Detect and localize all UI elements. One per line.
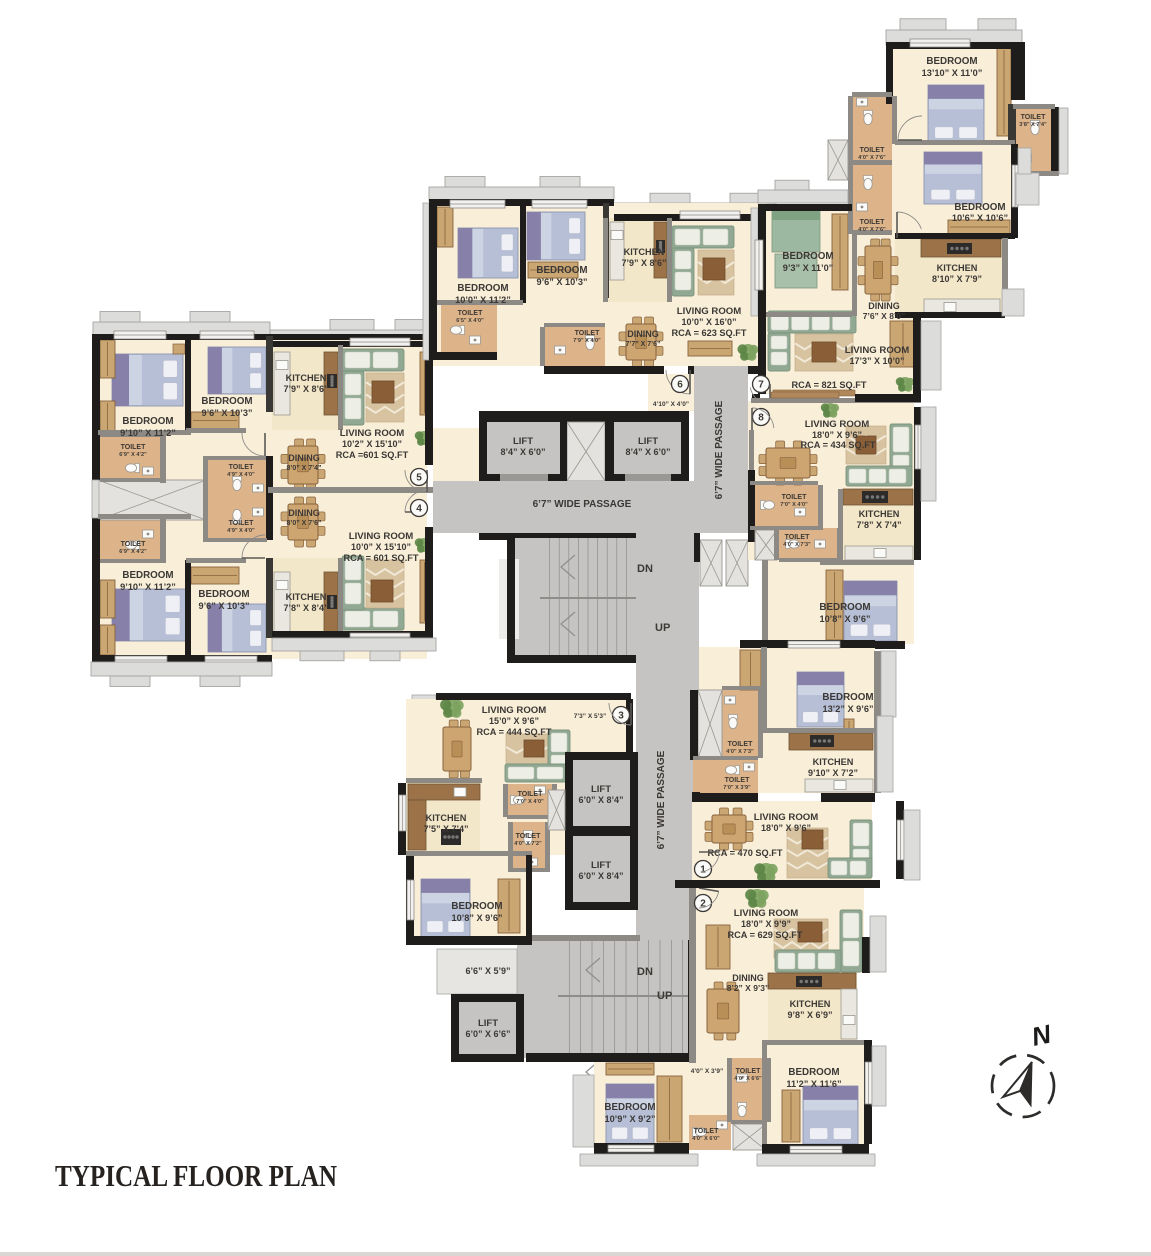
svg-text:BEDROOM: BEDROOM: [122, 416, 173, 427]
svg-text:4’10” X 4’0”: 4’10” X 4’0”: [653, 401, 689, 408]
svg-text:4’0” X 7’6”: 4’0” X 7’6”: [858, 227, 886, 233]
svg-text:TOILET: TOILET: [694, 1128, 719, 1135]
svg-text:LIVING ROOM: LIVING ROOM: [845, 345, 910, 356]
svg-text:10’0” X 15’10”: 10’0” X 15’10”: [351, 542, 411, 552]
svg-text:BEDROOM: BEDROOM: [788, 1067, 839, 1078]
svg-text:DINING: DINING: [868, 301, 900, 311]
svg-text:LIFT: LIFT: [478, 1018, 498, 1029]
svg-text:7’9” X 8’6”: 7’9” X 8’6”: [283, 384, 328, 394]
svg-text:4’0” X 6’0”: 4’0” X 6’0”: [692, 1136, 720, 1142]
svg-text:17’3” X 10’0”: 17’3” X 10’0”: [849, 356, 904, 366]
svg-text:KITCHEN: KITCHEN: [286, 373, 327, 383]
svg-text:LIVING ROOM: LIVING ROOM: [340, 428, 405, 439]
svg-text:18’0” X 9’9”: 18’0” X 9’9”: [741, 919, 791, 929]
svg-text:BEDROOM: BEDROOM: [451, 901, 502, 912]
svg-text:10’8” X 9’6”: 10’8” X 9’6”: [819, 614, 870, 624]
svg-text:TOILET: TOILET: [458, 310, 483, 317]
svg-text:BEDROOM: BEDROOM: [819, 602, 870, 613]
svg-text:BEDROOM: BEDROOM: [122, 570, 173, 581]
svg-text:7’6” X 8’0”: 7’6” X 8’0”: [863, 311, 906, 321]
svg-text:TOILET: TOILET: [229, 520, 254, 527]
svg-text:6’0” X 8’4”: 6’0” X 8’4”: [578, 795, 623, 805]
svg-text:LIFT: LIFT: [513, 436, 533, 447]
svg-text:9’10” X 7’2”: 9’10” X 7’2”: [808, 768, 858, 778]
svg-text:DINING: DINING: [288, 453, 320, 463]
svg-text:KITCHEN: KITCHEN: [859, 509, 900, 519]
svg-text:BEDROOM: BEDROOM: [822, 692, 873, 703]
svg-text:7’9” X 8’6”: 7’9” X 8’6”: [621, 258, 666, 268]
svg-text:TOILET: TOILET: [736, 1068, 761, 1075]
svg-text:BEDROOM: BEDROOM: [201, 396, 252, 407]
svg-text:7: 7: [758, 380, 764, 391]
svg-text:LIVING ROOM: LIVING ROOM: [677, 306, 742, 317]
svg-text:DN: DN: [637, 563, 653, 575]
svg-text:BEDROOM: BEDROOM: [782, 251, 833, 262]
svg-text:18’0” X 9’6”: 18’0” X 9’6”: [812, 430, 862, 440]
svg-text:RCA = 623 SQ.FT: RCA = 623 SQ.FT: [672, 328, 747, 338]
svg-text:DINING: DINING: [288, 508, 320, 518]
svg-text:TOILET: TOILET: [516, 833, 541, 840]
svg-text:8’4” X 6’0”: 8’4” X 6’0”: [500, 447, 545, 457]
svg-text:BEDROOM: BEDROOM: [954, 202, 1005, 213]
svg-text:6’0” X 6’6”: 6’0” X 6’6”: [465, 1029, 510, 1039]
svg-text:8’4” X 6’0”: 8’4” X 6’0”: [625, 447, 670, 457]
svg-text:7’9” X 4’0”: 7’9” X 4’0”: [573, 338, 601, 344]
svg-text:8’0” X 7’4”: 8’0” X 7’4”: [286, 465, 321, 472]
svg-text:15’0” X 9’6”: 15’0” X 9’6”: [489, 716, 539, 726]
svg-text:7’8” X 7’4”: 7’8” X 7’4”: [856, 520, 901, 530]
svg-text:RCA = 601 SQ.FT: RCA = 601 SQ.FT: [344, 553, 419, 563]
svg-text:7’8” X 8’4”: 7’8” X 8’4”: [283, 603, 328, 613]
svg-text:6’7” WIDE PASSAGE: 6’7” WIDE PASSAGE: [714, 400, 725, 499]
svg-text:4’0” X 3’9”: 4’0” X 3’9”: [691, 1068, 724, 1075]
svg-text:TOILET: TOILET: [575, 330, 600, 337]
svg-text:18’0” X 9’6”: 18’0” X 9’6”: [761, 823, 811, 833]
svg-text:RCA = 434 SQ.FT: RCA = 434 SQ.FT: [801, 440, 876, 450]
svg-text:TOILET: TOILET: [518, 791, 543, 798]
svg-text:8’10” X 7’9”: 8’10” X 7’9”: [932, 274, 982, 284]
svg-text:13’10” X 11’0”: 13’10” X 11’0”: [922, 68, 983, 78]
svg-text:RCA =601 SQ.FT: RCA =601 SQ.FT: [336, 450, 409, 460]
svg-text:9’3” X 11’0”: 9’3” X 11’0”: [783, 263, 834, 273]
svg-text:TOILET: TOILET: [229, 464, 254, 471]
svg-text:9’6” X 10’3”: 9’6” X 10’3”: [201, 408, 252, 418]
svg-text:10’9” X 9’2”: 10’9” X 9’2”: [604, 1114, 655, 1124]
svg-text:11’2” X 11’6”: 11’2” X 11’6”: [786, 1079, 841, 1089]
svg-text:10’0” X 16’0”: 10’0” X 16’0”: [681, 317, 736, 327]
svg-text:KITCHEN: KITCHEN: [790, 999, 831, 1009]
svg-text:7’0” X 4’0”: 7’0” X 4’0”: [780, 502, 808, 508]
svg-text:KITCHEN: KITCHEN: [286, 592, 327, 602]
svg-text:LIVING ROOM: LIVING ROOM: [349, 531, 414, 542]
svg-text:7’0” X 4’0”: 7’0” X 4’0”: [516, 799, 544, 805]
svg-text:DINING: DINING: [732, 973, 764, 983]
svg-text:13’2” X 9’6”: 13’2” X 9’6”: [822, 704, 873, 714]
svg-text:9’10” X 11’2”: 9’10” X 11’2”: [120, 428, 176, 438]
svg-text:BEDROOM: BEDROOM: [457, 283, 508, 294]
svg-text:4’0” X 7’2”: 4’0” X 7’2”: [514, 841, 542, 847]
svg-text:LIFT: LIFT: [591, 784, 611, 795]
svg-text:10’6” X 10’6”: 10’6” X 10’6”: [952, 213, 1008, 223]
svg-text:6’9” X 4’2”: 6’9” X 4’2”: [119, 549, 147, 555]
svg-text:4’9” X 4’0”: 4’9” X 4’0”: [227, 528, 255, 534]
svg-text:3’8” X 7’4”: 3’8” X 7’4”: [1019, 122, 1047, 128]
svg-text:4’0” X 7’6”: 4’0” X 7’6”: [858, 155, 886, 161]
svg-text:TOILET: TOILET: [860, 219, 885, 226]
svg-text:9’10” X 11’2”: 9’10” X 11’2”: [120, 582, 176, 592]
svg-text:TOILET: TOILET: [782, 494, 807, 501]
svg-text:RCA = 821 SQ.FT: RCA = 821 SQ.FT: [792, 380, 867, 390]
svg-text:BEDROOM: BEDROOM: [536, 265, 587, 276]
svg-text:KITCHEN: KITCHEN: [937, 263, 978, 273]
svg-text:RCA = 629 SQ.FT: RCA = 629 SQ.FT: [728, 930, 803, 940]
svg-text:4’9” X 4’0”: 4’9” X 4’0”: [227, 472, 255, 478]
svg-text:10’0” X 11’2”: 10’0” X 11’2”: [455, 295, 511, 305]
svg-text:LIVING ROOM: LIVING ROOM: [805, 419, 870, 430]
svg-text:BEDROOM: BEDROOM: [604, 1102, 655, 1113]
svg-text:1: 1: [700, 865, 706, 876]
svg-text:6: 6: [677, 380, 683, 391]
svg-text:6’6” X 5’9”: 6’6” X 5’9”: [465, 966, 510, 976]
svg-text:KITCHEN: KITCHEN: [813, 757, 854, 767]
svg-text:TOILET: TOILET: [121, 541, 146, 548]
svg-text:7’5” X 7’4”: 7’5” X 7’4”: [423, 824, 468, 834]
svg-text:RCA = 444 SQ.FT: RCA = 444 SQ.FT: [477, 727, 552, 737]
svg-text:BEDROOM: BEDROOM: [926, 56, 977, 67]
svg-text:10’2” X 15’10”: 10’2” X 15’10”: [342, 439, 402, 449]
svg-text:TOILET: TOILET: [1021, 114, 1046, 121]
svg-text:6’5” X 4’0”: 6’5” X 4’0”: [456, 318, 484, 324]
svg-text:6’0” X 8’4”: 6’0” X 8’4”: [578, 871, 623, 881]
svg-text:BEDROOM: BEDROOM: [198, 589, 249, 600]
svg-text:5: 5: [416, 473, 422, 484]
svg-text:TOILET: TOILET: [121, 444, 146, 451]
svg-text:DN: DN: [637, 966, 653, 978]
svg-text:4’0” X 6’6”: 4’0” X 6’6”: [734, 1076, 762, 1082]
svg-text:TYPICAL FLOOR PLAN: TYPICAL FLOOR PLAN: [55, 1158, 337, 1193]
svg-text:KITCHEN: KITCHEN: [624, 247, 665, 257]
svg-text:DINING: DINING: [627, 329, 659, 339]
svg-text:3: 3: [618, 711, 624, 722]
svg-text:9’8” X 6’9”: 9’8” X 6’9”: [787, 1010, 832, 1020]
svg-text:9’6” X 10’3”: 9’6” X 10’3”: [198, 601, 249, 611]
svg-text:8’2” X 9’3”: 8’2” X 9’3”: [727, 983, 770, 993]
svg-text:LIVING ROOM: LIVING ROOM: [482, 705, 547, 716]
svg-text:6’7” WIDE PASSAGE: 6’7” WIDE PASSAGE: [533, 499, 632, 510]
svg-text:4’0” X 7’3”: 4’0” X 7’3”: [783, 542, 811, 548]
svg-text:LIFT: LIFT: [638, 436, 658, 447]
svg-text:7’3” X 5’3”: 7’3” X 5’3”: [574, 713, 607, 720]
svg-text:TOILET: TOILET: [728, 741, 753, 748]
svg-text:UP: UP: [657, 990, 672, 1002]
svg-text:UP: UP: [655, 622, 670, 634]
svg-text:7’7” X 7’6”: 7’7” X 7’6”: [625, 341, 660, 348]
svg-text:8’0” X 7’6”: 8’0” X 7’6”: [286, 520, 321, 527]
svg-text:TOILET: TOILET: [860, 147, 885, 154]
svg-text:LIVING ROOM: LIVING ROOM: [734, 908, 799, 919]
svg-text:4: 4: [416, 504, 422, 515]
svg-text:4’0” X 7’3”: 4’0” X 7’3”: [726, 749, 754, 755]
svg-text:6’7” WIDE PASSAGE: 6’7” WIDE PASSAGE: [656, 750, 667, 849]
svg-text:9’6” X 10’3”: 9’6” X 10’3”: [536, 277, 587, 287]
svg-text:KITCHEN: KITCHEN: [426, 813, 467, 823]
svg-text:LIVING ROOM: LIVING ROOM: [754, 812, 819, 823]
svg-text:TOILET: TOILET: [785, 534, 810, 541]
svg-text:6’9” X 4’2”: 6’9” X 4’2”: [119, 452, 147, 458]
svg-text:10’8” X 9’6”: 10’8” X 9’6”: [451, 913, 502, 923]
svg-text:LIFT: LIFT: [591, 860, 611, 871]
svg-text:8: 8: [758, 413, 764, 424]
svg-text:TOILET: TOILET: [725, 777, 750, 784]
svg-text:7’0” X 3’9”: 7’0” X 3’9”: [723, 785, 751, 791]
